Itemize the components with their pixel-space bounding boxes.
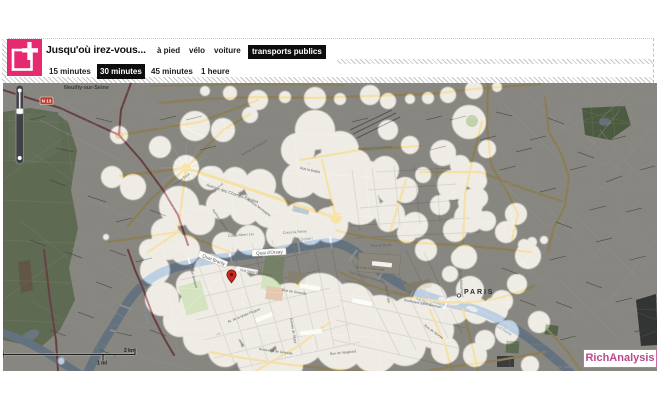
svg-text:N 13: N 13 [42, 99, 52, 104]
svg-text:1 mi: 1 mi [97, 361, 108, 367]
svg-text:©2011 Google - Map data: ©2011 Google - Map data [540, 365, 579, 369]
svg-text:Neuilly-sur-Seine: Neuilly-sur-Seine [64, 85, 109, 91]
svg-text:PARIS: PARIS [464, 289, 494, 296]
svg-text:2 km: 2 km [124, 348, 136, 354]
